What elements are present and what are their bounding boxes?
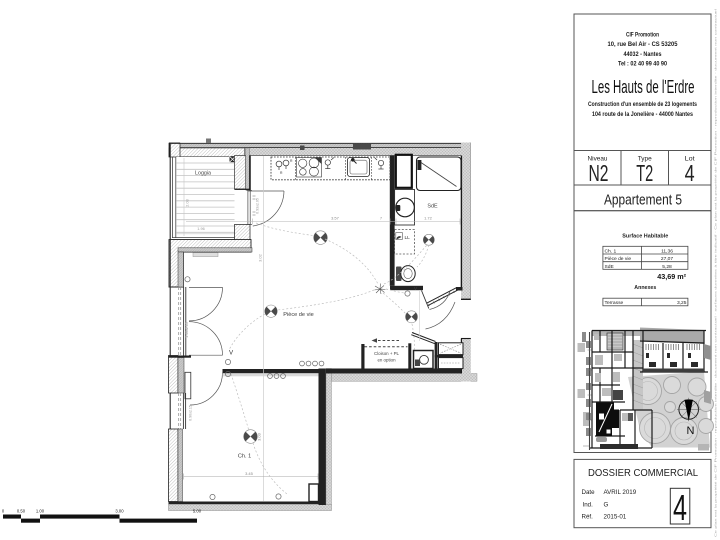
svg-text:27,07: 27,07 — [661, 256, 674, 262]
svg-text:1.96: 1.96 — [197, 227, 204, 231]
svg-text:Pièce de vie: Pièce de vie — [605, 256, 632, 262]
svg-text:Loggia: Loggia — [195, 171, 211, 177]
svg-text:Annexes: Annexes — [634, 285, 656, 291]
svg-text:0.50: 0.50 — [17, 509, 26, 514]
svg-text:10, rue Bel Air - CS 53205: 10, rue Bel Air - CS 53205 — [608, 41, 678, 48]
svg-text:5.00: 5.00 — [193, 509, 202, 514]
svg-text:en option: en option — [377, 358, 396, 363]
svg-text:3.02: 3.02 — [258, 253, 263, 262]
svg-text:Réf.: Réf. — [582, 514, 594, 521]
svg-text:Construction d'un ensemble de: Construction d'un ensemble de 23 logemen… — [588, 101, 697, 108]
svg-text:SdE: SdE — [427, 204, 438, 210]
svg-text:N2: N2 — [589, 160, 609, 186]
svg-text:3,25: 3,25 — [677, 300, 687, 306]
svg-text:3.03: 3.03 — [257, 432, 262, 441]
svg-text:Surface Habitable: Surface Habitable — [622, 233, 668, 239]
svg-text:Tel : 02 40 99 40 90: Tel : 02 40 99 40 90 — [618, 61, 667, 68]
svg-text:1.00: 1.00 — [36, 509, 45, 514]
svg-text:3.00: 3.00 — [115, 509, 124, 514]
svg-text:2.03: 2.03 — [186, 199, 190, 206]
svg-text:43,69 m²: 43,69 m² — [657, 272, 686, 281]
svg-text:Cloison + PL: Cloison + PL — [374, 351, 400, 356]
svg-text:G: G — [604, 501, 609, 508]
svg-text:104 route de la Jonelière - 44: 104 route de la Jonelière - 44000 Nantes — [592, 111, 693, 118]
svg-text:CIF Promotion: CIF Promotion — [626, 32, 659, 39]
svg-text:7: 7 — [380, 217, 382, 221]
svg-text:44032 - Nantes: 44032 - Nantes — [624, 51, 662, 58]
svg-text:4: 4 — [685, 160, 695, 186]
svg-text:Ce plan est la propriété de CI: Ce plan est la propriété de CIF Promotio… — [714, 8, 718, 537]
svg-text:Ch. 1: Ch. 1 — [605, 248, 617, 254]
svg-text:2015-01: 2015-01 — [604, 514, 627, 521]
svg-text:0.93x2.05: 0.93x2.05 — [256, 198, 260, 214]
svg-text:V: V — [414, 286, 417, 291]
svg-text:11,36: 11,36 — [661, 248, 673, 254]
svg-text:1.40x2.15: 1.40x2.15 — [185, 322, 189, 338]
svg-text:Ind.: Ind. — [583, 501, 594, 508]
svg-text:3.45: 3.45 — [245, 471, 254, 476]
svg-text:0.90x2.15: 0.90x2.15 — [189, 405, 193, 421]
svg-text:Date: Date — [582, 489, 596, 496]
svg-text:AVRIL 2019: AVRIL 2019 — [604, 489, 637, 496]
svg-text:5,28: 5,28 — [662, 264, 672, 270]
svg-text:DOSSIER COMMERCIAL: DOSSIER COMMERCIAL — [588, 468, 698, 479]
svg-text:Appartement 5: Appartement 5 — [604, 192, 682, 209]
svg-text:T2: T2 — [636, 160, 653, 186]
svg-text:N: N — [687, 425, 695, 437]
svg-text:4: 4 — [673, 487, 687, 528]
svg-text:1.72: 1.72 — [424, 216, 433, 221]
svg-text:Les Hauts de l'Erdre: Les Hauts de l'Erdre — [592, 76, 695, 97]
svg-text:SdE: SdE — [605, 264, 615, 270]
svg-text:Pièce de vie: Pièce de vie — [283, 312, 313, 318]
svg-text:LL: LL — [405, 235, 411, 241]
svg-text:Terrasse: Terrasse — [605, 300, 624, 306]
svg-text:Ch. 1: Ch. 1 — [238, 454, 251, 460]
svg-text:3.57: 3.57 — [331, 216, 340, 221]
